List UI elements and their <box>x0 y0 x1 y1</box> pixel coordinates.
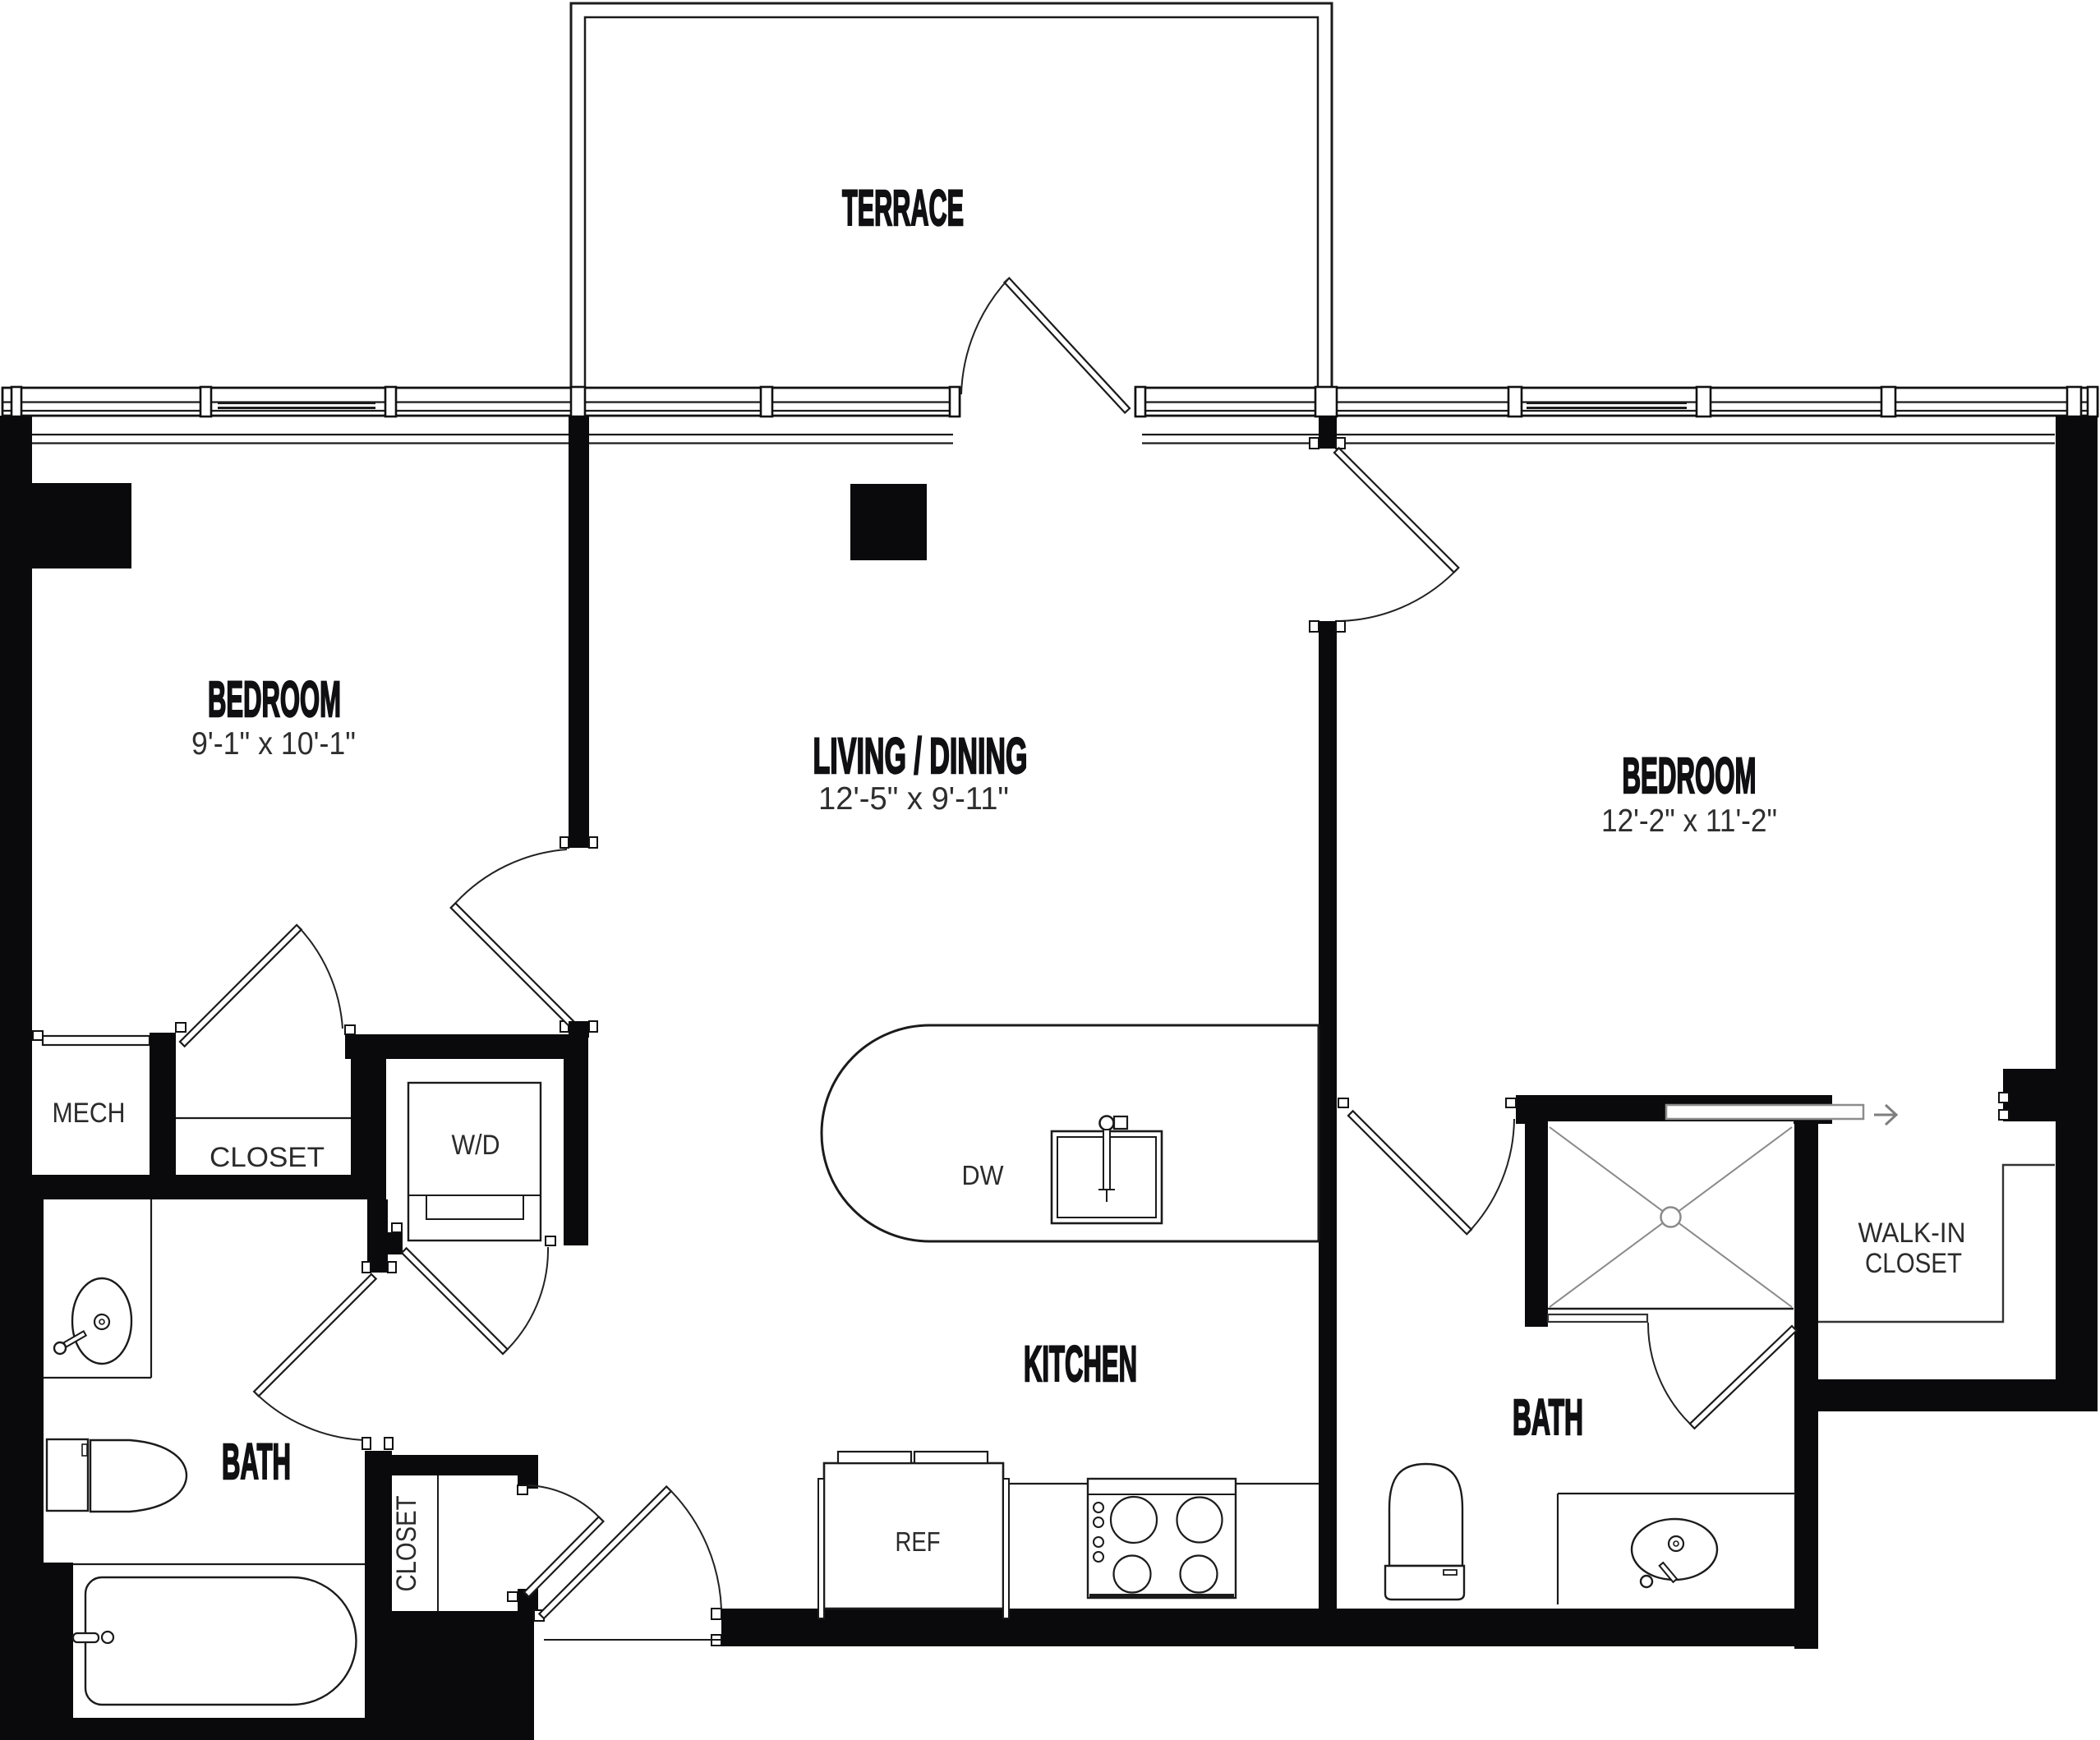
svg-text:BATH: BATH <box>1513 1389 1583 1445</box>
svg-text:LIVING / DINING: LIVING / DINING <box>813 728 1028 784</box>
svg-text:DW: DW <box>962 1160 1005 1190</box>
svg-text:WALK-IN: WALK-IN <box>1858 1218 1966 1249</box>
svg-text:BATH: BATH <box>222 1434 291 1489</box>
svg-text:12'-2" x 11'-2": 12'-2" x 11'-2" <box>1601 803 1777 839</box>
svg-text:12'-5" x 9'-11": 12'-5" x 9'-11" <box>818 781 1009 817</box>
svg-text:BEDROOM: BEDROOM <box>208 671 341 727</box>
svg-text:CLOSET: CLOSET <box>210 1142 325 1173</box>
svg-text:MECH: MECH <box>53 1098 126 1129</box>
svg-text:W/D: W/D <box>452 1130 500 1161</box>
svg-text:CLOSET: CLOSET <box>1865 1248 1962 1279</box>
svg-text:CLOSET: CLOSET <box>391 1496 422 1592</box>
svg-text:REF: REF <box>896 1526 941 1557</box>
svg-text:KITCHEN: KITCHEN <box>1024 1336 1137 1392</box>
svg-text:9'-1" x 10'-1": 9'-1" x 10'-1" <box>191 726 356 762</box>
svg-text:BEDROOM: BEDROOM <box>1623 748 1757 803</box>
svg-text:TERRACE: TERRACE <box>842 180 964 236</box>
